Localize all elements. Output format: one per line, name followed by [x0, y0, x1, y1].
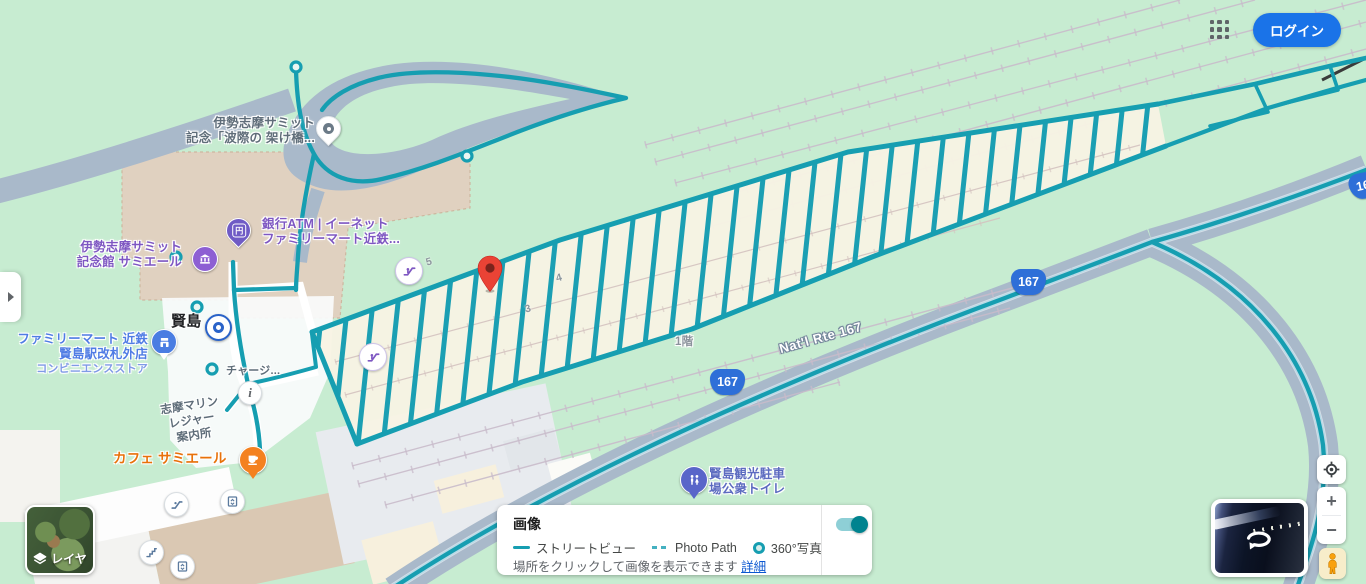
card-divider: [821, 505, 822, 575]
my-location-icon: [1323, 461, 1340, 478]
side-panel-toggle[interactable]: [0, 272, 21, 322]
photo-path-legend-label: Photo Path: [675, 541, 737, 555]
indoor-elevator-icon-1[interactable]: [220, 489, 245, 514]
layers-button-label: レイヤ: [51, 550, 87, 567]
red-map-pin[interactable]: [477, 255, 503, 298]
layers-icon: [33, 552, 47, 566]
escalator-icon-lower[interactable]: [359, 343, 387, 371]
cafe-icon[interactable]: [239, 446, 267, 474]
login-button[interactable]: ログイン: [1253, 13, 1341, 47]
toggle-knob: [851, 516, 868, 533]
kashikojima-station-icon[interactable]: [205, 314, 232, 341]
map-label-cafe[interactable]: カフェ サミエール: [113, 451, 227, 466]
map-label-floor: 1階: [675, 335, 693, 350]
imagery-card-title: 画像: [513, 514, 541, 534]
map-label-charge[interactable]: チャージ...: [226, 364, 280, 379]
map-label-summit-museum[interactable]: 伊勢志摩サミット記念館 サミエール: [60, 240, 182, 270]
route-shield-167-a: 167: [710, 369, 745, 395]
indoor-stairs-icon[interactable]: [139, 540, 164, 565]
map-label-summit-bridge[interactable]: 伊勢志摩サミット記念「波際の 架け橋...: [165, 116, 315, 146]
chevron-right-icon: [8, 292, 14, 302]
photo-360-legend-label: 360°写真: [771, 538, 822, 557]
map-label-familymart[interactable]: ファミリーマート 近鉄賢島駅改札外店 コンビニエンスストア: [8, 332, 148, 377]
rotate-view-icon: [1241, 529, 1275, 551]
museum-icon[interactable]: [192, 246, 218, 272]
map-canvas[interactable]: [0, 0, 1366, 584]
my-location-button[interactable]: [1317, 455, 1346, 484]
layers-button[interactable]: レイヤ: [25, 505, 95, 575]
pegman-button[interactable]: [1319, 548, 1346, 579]
familymart-store-icon[interactable]: [151, 329, 177, 355]
map-label-bank-atm[interactable]: 銀行ATM | イーネットファミリーマート近鉄...: [262, 217, 400, 247]
indoor-elevator-icon-2[interactable]: [170, 554, 195, 579]
map-label-parking-toilet[interactable]: 賢島観光駐車場公衆トイレ: [709, 467, 785, 497]
indoor-escalator-icon[interactable]: [164, 492, 189, 517]
google-apps-grid-icon[interactable]: [1210, 20, 1229, 39]
street-view-line-swatch: [513, 546, 530, 550]
street-view-preview-thumbnail[interactable]: [1211, 499, 1308, 577]
details-link[interactable]: 詳細: [741, 560, 766, 574]
zoom-out-button[interactable]: −: [1317, 516, 1346, 544]
photo-360-swatch: [753, 542, 765, 554]
zoom-controls: + −: [1317, 487, 1346, 544]
street-view-legend-label: ストリートビュー: [536, 538, 636, 557]
imagery-legend-card: 画像 ストリートビュー Photo Path 360°写真 場所をクリックして画…: [497, 505, 872, 575]
route-shield-167-b: 167: [1011, 269, 1046, 295]
toilet-icon[interactable]: [680, 466, 708, 494]
imagery-legend-row: ストリートビュー Photo Path 360°写真: [513, 538, 822, 557]
escalator-icon-upper[interactable]: [395, 257, 423, 285]
info-icon[interactable]: i: [238, 381, 262, 405]
pegman-icon: [1324, 552, 1341, 575]
imagery-hint: 場所をクリックして画像を表示できます 詳細: [513, 556, 766, 575]
zoom-in-button[interactable]: +: [1317, 487, 1346, 515]
map-label-kashikojima-station[interactable]: 賢島: [171, 314, 201, 329]
imagery-toggle-switch[interactable]: [836, 518, 866, 531]
photo-path-swatch: [652, 546, 669, 550]
map-viewport[interactable]: 伊勢志摩サミット記念「波際の 架け橋... 銀行ATM | イーネットファミリー…: [0, 0, 1366, 584]
